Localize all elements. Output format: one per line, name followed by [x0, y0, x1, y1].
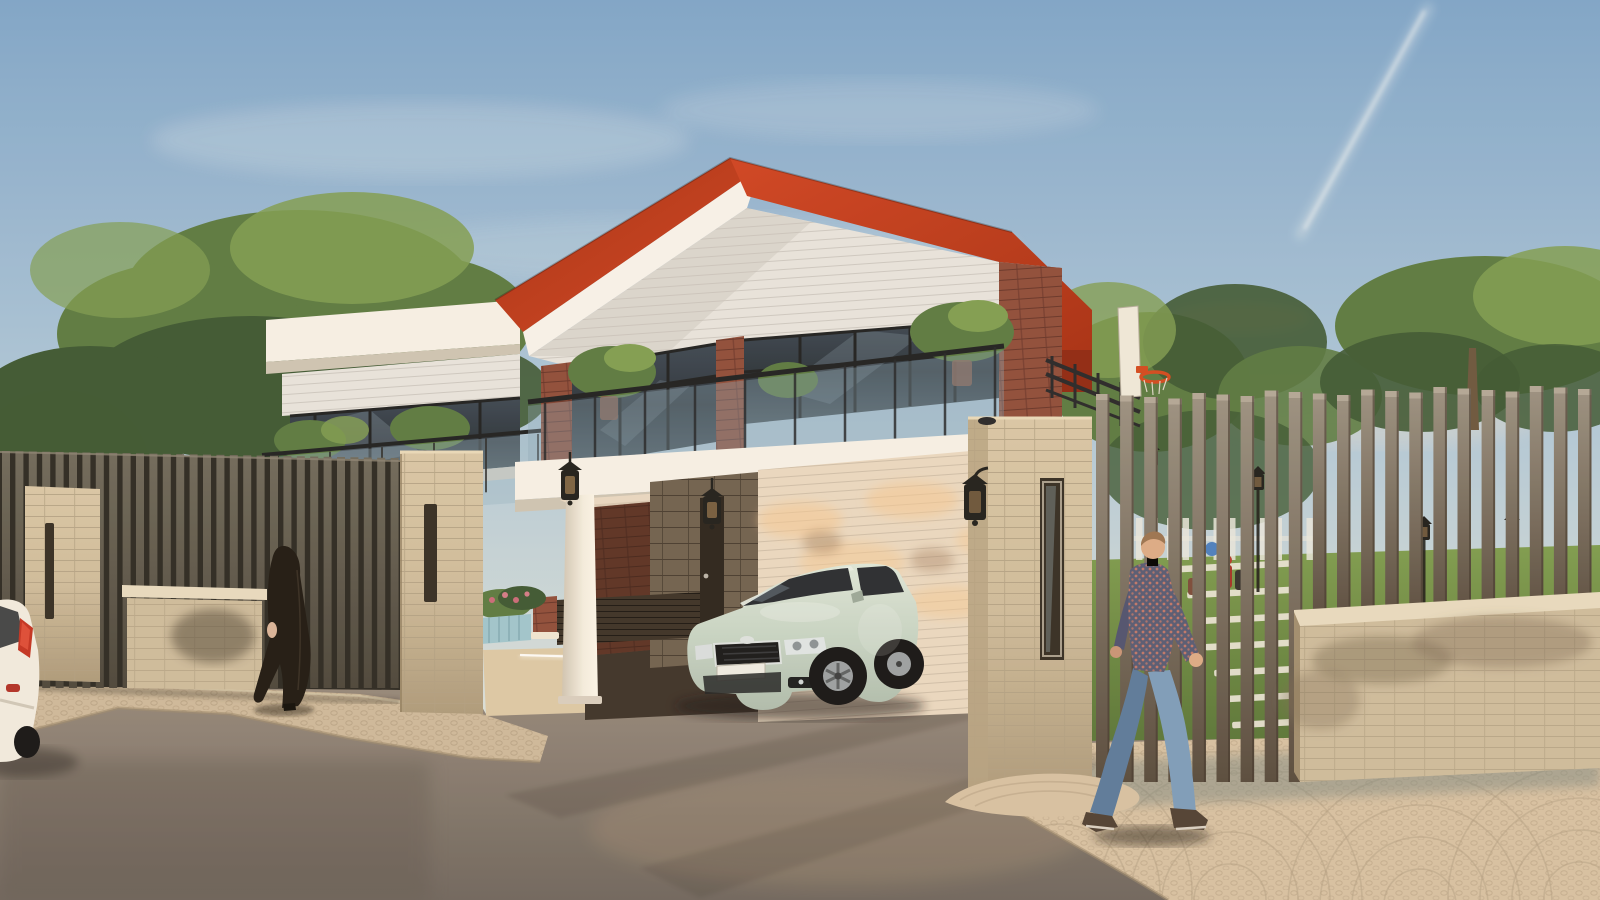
warm-light-overlay — [0, 0, 1600, 900]
architectural-render — [0, 0, 1600, 900]
render-canvas — [0, 0, 1600, 900]
